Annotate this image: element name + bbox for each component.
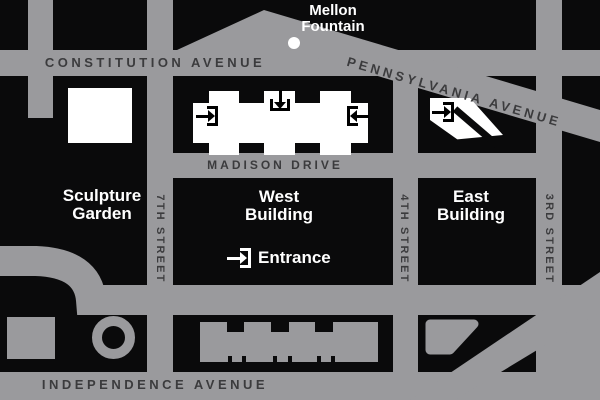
entrance-arrow-right-icon <box>227 248 251 268</box>
west-building-tab <box>320 91 351 103</box>
notched-building-footprint <box>200 322 378 362</box>
national-gallery-area-map: CONSTITUTION AVENUE PENNSYLVANIA AVENUE … <box>0 0 600 400</box>
square-building-footprint <box>68 88 132 143</box>
independence-avenue-label: INDEPENDENCE AVENUE <box>38 377 272 392</box>
entrance-label: Entrance <box>258 249 331 267</box>
madison-drive-label: MADISON DRIVE <box>175 158 375 172</box>
west-building-tab <box>209 143 239 155</box>
ring-building-footprint <box>92 316 135 359</box>
west-building-label: West Building <box>209 188 349 224</box>
constitution-avenue-label: CONSTITUTION AVENUE <box>38 55 272 70</box>
east-building-label: East Building <box>401 188 541 224</box>
mellon-fountain-label: Mellon Fountain <box>283 3 383 35</box>
west-building-tab <box>209 91 239 103</box>
mellon-fountain-dot <box>288 37 300 49</box>
entrance-arrow-right-icon <box>432 102 454 122</box>
gray-building-footprint <box>7 317 55 359</box>
entrance-arrow-left-icon <box>347 106 369 126</box>
entrance-arrow-down-icon <box>269 90 291 112</box>
west-building-tab <box>264 143 295 155</box>
trapezoid-building-footprint <box>430 324 474 350</box>
sculpture-garden-label: Sculpture Garden <box>32 187 172 223</box>
entrance-arrow-right-icon <box>196 106 218 126</box>
west-building-tab <box>320 143 351 155</box>
third-street-label: 3RD STREET <box>543 171 555 307</box>
